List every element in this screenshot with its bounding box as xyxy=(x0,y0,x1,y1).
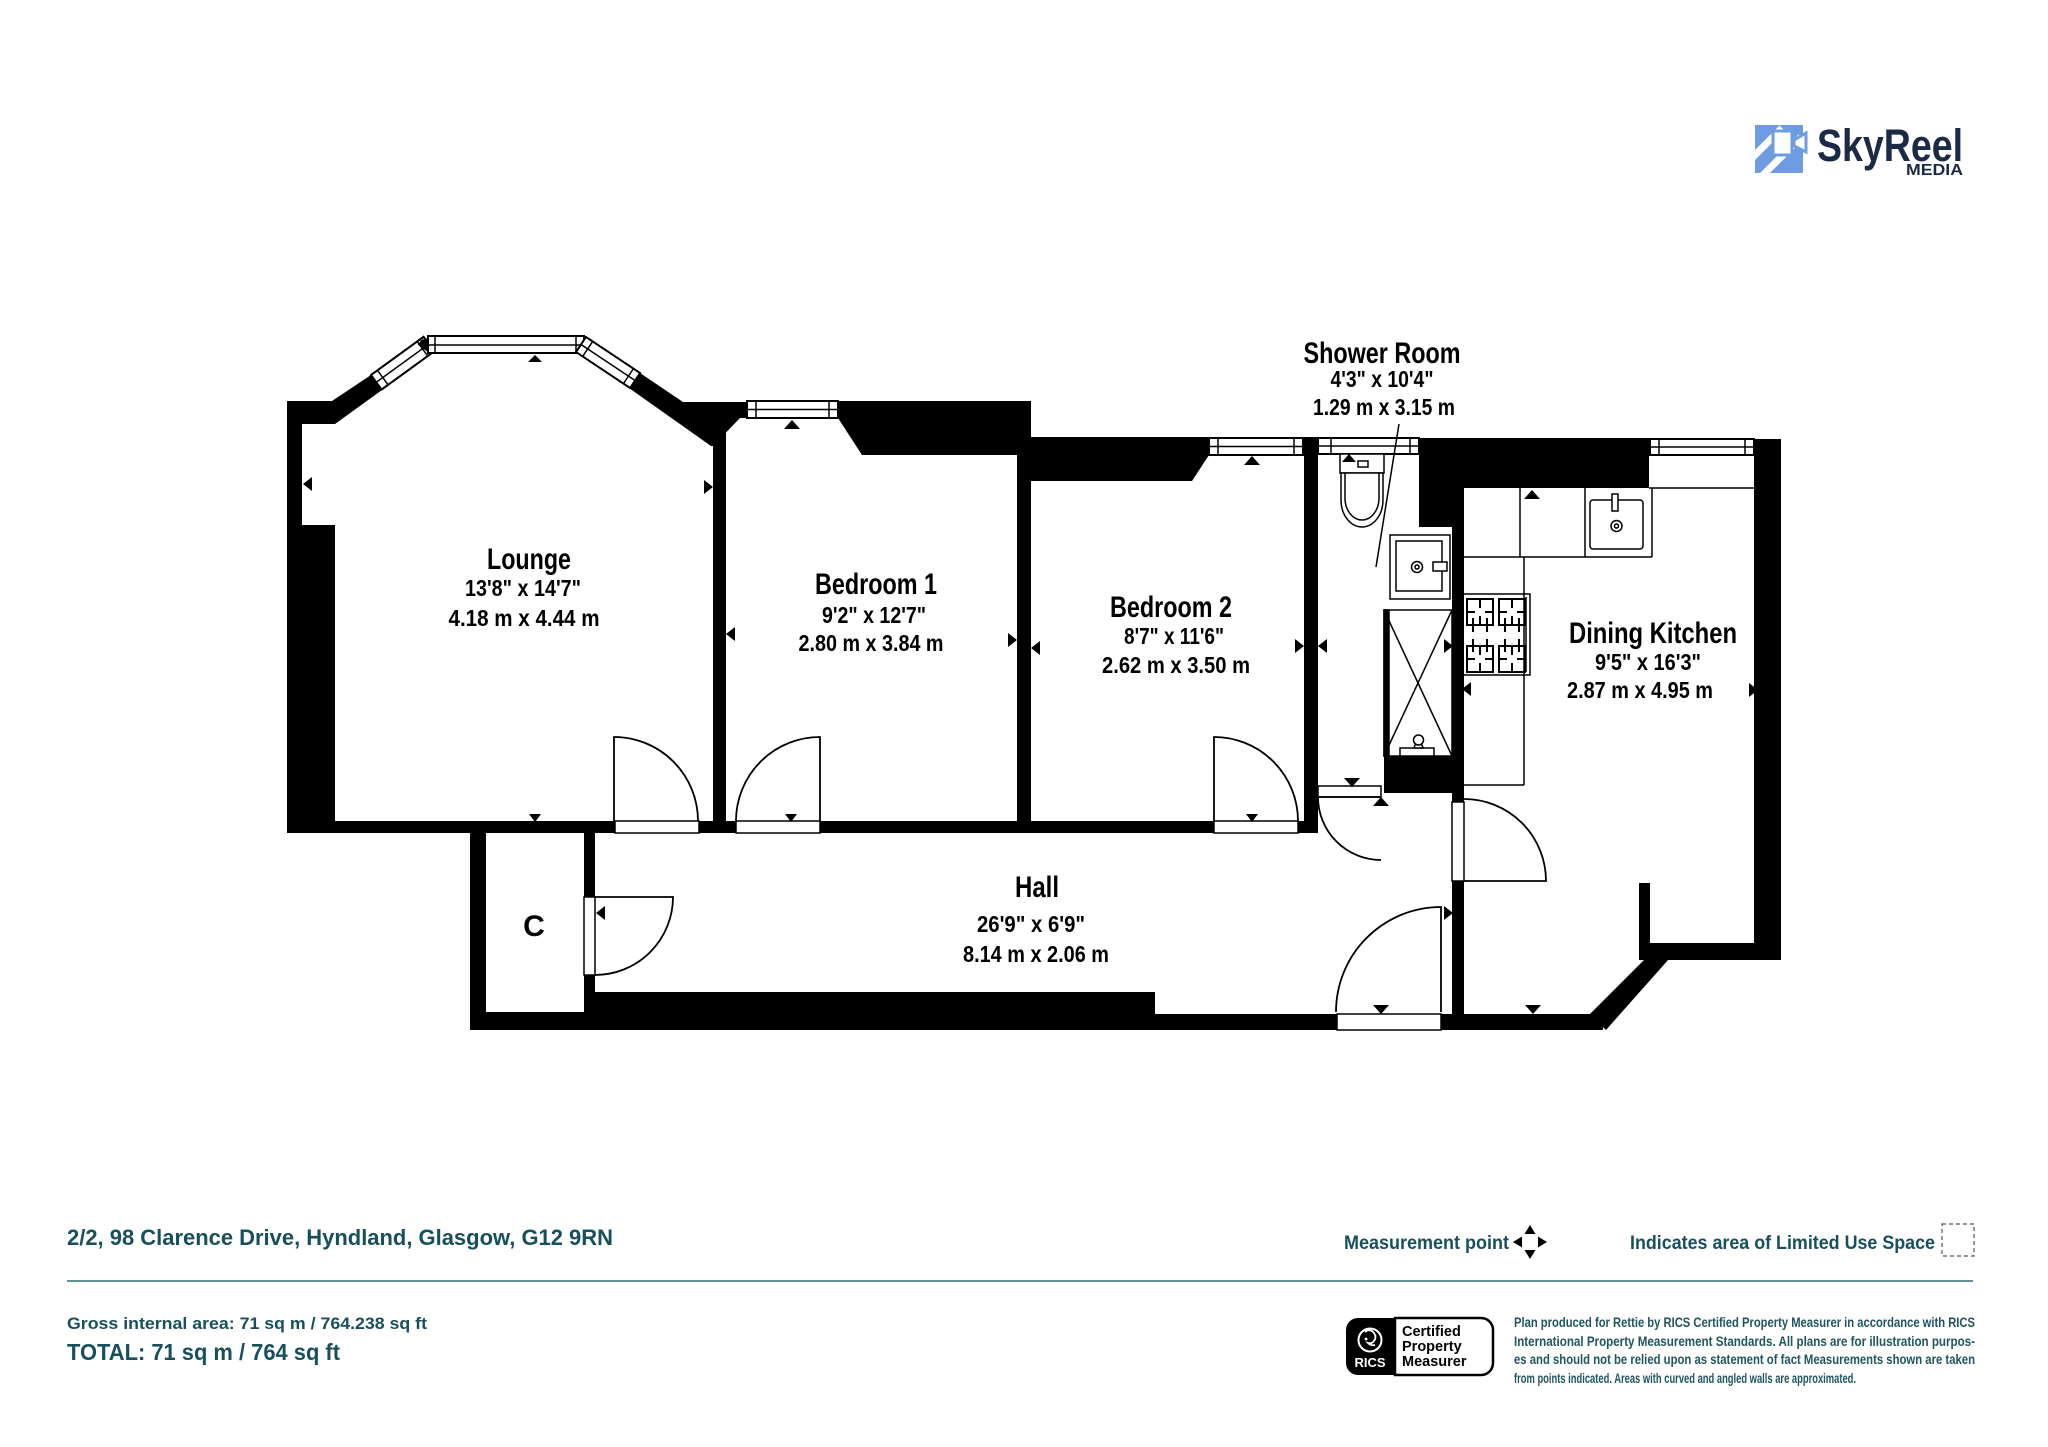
svg-text:Property: Property xyxy=(1402,1339,1462,1355)
svg-text:Certified: Certified xyxy=(1402,1324,1461,1340)
svg-text:4'3" x 10'4": 4'3" x 10'4" xyxy=(1331,366,1434,392)
svg-text:RICS: RICS xyxy=(1354,1355,1385,1370)
svg-text:8.14 m x 2.06 m: 8.14 m x 2.06 m xyxy=(963,941,1109,967)
svg-text:4.18 m x 4.44 m: 4.18 m x 4.44 m xyxy=(449,605,600,631)
svg-text:from points indicated. Areas w: from points indicated. Areas with curved… xyxy=(1514,1371,1856,1386)
svg-text:Gross internal area: 71 sq m /: Gross internal area: 71 sq m / 764.238 s… xyxy=(67,1314,427,1333)
svg-text:Plan produced for Rettie by RI: Plan produced for Rettie by RICS Certifi… xyxy=(1514,1315,1975,1330)
svg-text:Measurer: Measurer xyxy=(1402,1354,1467,1370)
svg-text:Hall: Hall xyxy=(1015,871,1059,904)
svg-text:Dining Kitchen: Dining Kitchen xyxy=(1569,617,1737,650)
svg-text:13'8" x 14'7": 13'8" x 14'7" xyxy=(465,575,581,601)
svg-text:2.62 m x 3.50 m: 2.62 m x 3.50 m xyxy=(1102,652,1250,678)
svg-text:2.87 m x 4.95 m: 2.87 m x 4.95 m xyxy=(1567,677,1713,703)
svg-text:Bedroom 2: Bedroom 2 xyxy=(1110,591,1232,624)
svg-text:2/2, 98 Clarence Drive, Hyndla: 2/2, 98 Clarence Drive, Hyndland, Glasgo… xyxy=(67,1225,613,1250)
svg-text:MEDIA: MEDIA xyxy=(1906,162,1963,179)
svg-text:International Property Measur: International Property Measurement Stand… xyxy=(1514,1334,1975,1349)
svg-text:2.80 m x 3.84 m: 2.80 m x 3.84 m xyxy=(799,630,944,656)
svg-text:Lounge: Lounge xyxy=(487,543,571,576)
svg-text:C: C xyxy=(523,910,545,943)
svg-text:Measurement point: Measurement point xyxy=(1344,1233,1510,1254)
svg-text:8'7" x 11'6": 8'7" x 11'6" xyxy=(1124,623,1224,649)
svg-text:Bedroom 1: Bedroom 1 xyxy=(815,568,937,601)
svg-text:Indicates area of Limited Use: Indicates area of Limited Use Space xyxy=(1630,1233,1935,1254)
svg-text:TOTAL: 71 sq m / 764 sq ft: TOTAL: 71 sq m / 764 sq ft xyxy=(67,1339,340,1365)
svg-text:9'5" x 16'3": 9'5" x 16'3" xyxy=(1595,649,1701,675)
svg-text:26'9" x 6'9": 26'9" x 6'9" xyxy=(977,911,1085,937)
svg-text:es and should not be relied up: es and should not be relied upon as stat… xyxy=(1514,1352,1975,1367)
svg-text:1.29 m x 3.15 m: 1.29 m x 3.15 m xyxy=(1313,394,1455,420)
svg-text:9'2" x 12'7": 9'2" x 12'7" xyxy=(822,602,926,628)
